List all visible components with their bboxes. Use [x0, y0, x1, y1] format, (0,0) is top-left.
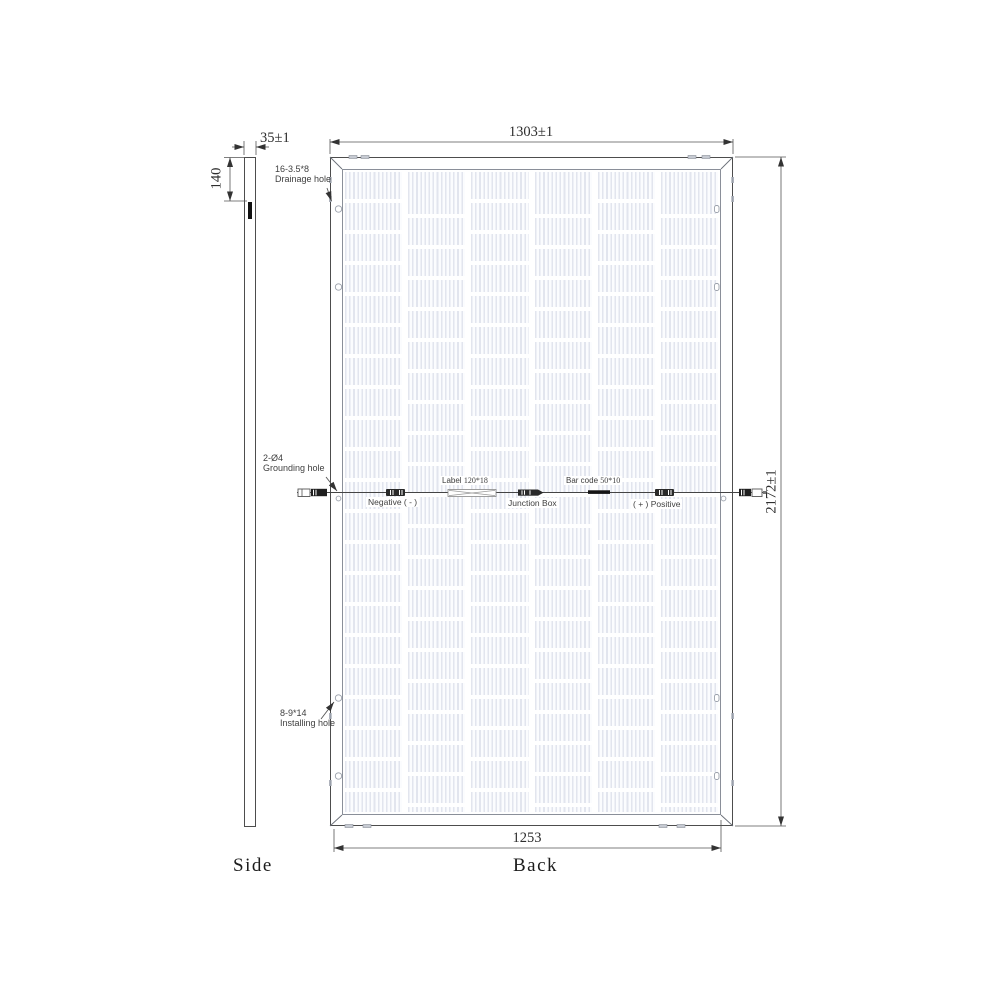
linework-layer	[0, 0, 1000, 1000]
installing-hole	[335, 773, 341, 779]
installing-hole-label: Installing hole	[280, 718, 335, 728]
drainage-hole-label: Drainage hole	[275, 174, 331, 184]
label-tag: Label 120*18	[440, 476, 490, 485]
drainage-holes-side-edges	[329, 177, 734, 786]
installing-slot	[715, 695, 720, 702]
junction-box-label: Junction Box	[506, 498, 559, 508]
installing-hole-spec: 8-9*14	[280, 708, 335, 718]
installing-slot	[715, 284, 720, 291]
grounding-leader	[326, 477, 337, 491]
dim-text-side-thickness: 35±1	[260, 130, 290, 147]
label-tag-size: 120*18	[464, 476, 488, 485]
drainage-hole-callout: 16-3.5*8 Drainage hole	[275, 164, 331, 184]
technical-drawing-canvas: 35±1 140 1303±1 2172±1 1253 Side Back 16…	[0, 0, 1000, 1000]
installing-slot	[715, 206, 720, 213]
grounding-hole-spec: 2-Ø4	[263, 453, 325, 463]
grounding-hole-callout: 2-Ø4 Grounding hole	[263, 453, 325, 473]
dim-text-panel-width: 1303±1	[481, 124, 581, 141]
dim-width-top	[330, 139, 733, 154]
dim-text-panel-bottom-width: 1253	[487, 830, 567, 847]
dim-side-bracket	[224, 158, 247, 202]
installing-hole	[335, 695, 341, 701]
barcode-mark	[588, 490, 610, 494]
mc4-connector-negative	[298, 489, 327, 497]
barcode-tag: Bar code 50*10	[564, 476, 622, 485]
grounding-hole-label: Grounding hole	[263, 463, 325, 473]
installing-hole-callout: 8-9*14 Installing hole	[280, 708, 335, 728]
dim-text-side-bracket: 140	[209, 159, 226, 199]
dim-text-panel-height: 2172±1	[764, 457, 781, 527]
barcode-tag-size: 50*10	[600, 476, 620, 485]
label-tag-name: Label	[442, 476, 462, 485]
side-view-title: Side	[233, 855, 273, 877]
positive-terminal-label: ( + ) Positive	[631, 499, 682, 509]
inline-connector-positive	[655, 489, 674, 496]
barcode-tag-name: Bar code	[566, 476, 598, 485]
junction-box-connector	[518, 490, 544, 496]
inline-connector-negative	[386, 489, 405, 496]
cable-assembly	[297, 489, 767, 497]
grounding-hole	[336, 496, 341, 501]
installing-slot	[715, 773, 720, 780]
installing-hole	[335, 206, 341, 212]
drainage-hole-spec: 16-3.5*8	[275, 164, 331, 174]
label-plate	[448, 490, 496, 497]
negative-terminal-label: Negative ( - )	[366, 497, 419, 507]
grounding-hole	[721, 496, 726, 501]
installing-hole	[335, 284, 341, 290]
back-view-title: Back	[513, 855, 558, 877]
